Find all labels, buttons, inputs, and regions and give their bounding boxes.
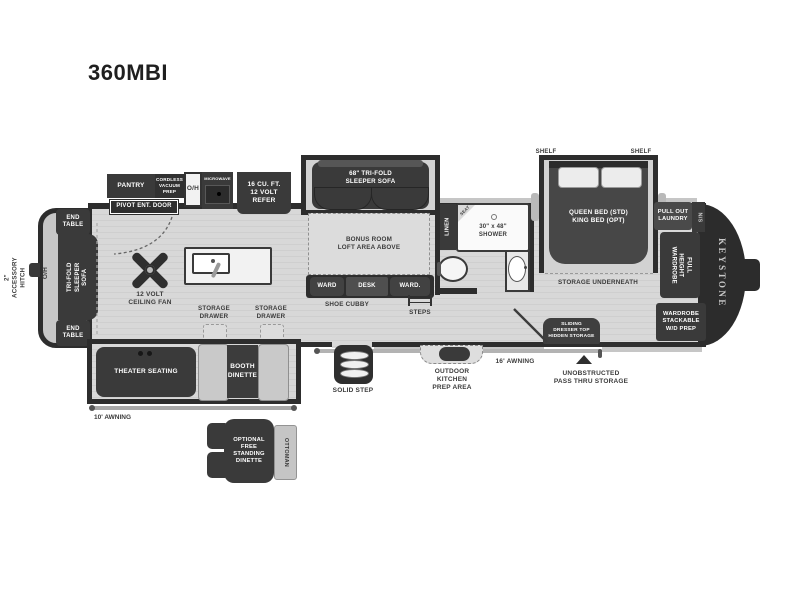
bath-wall-bottom [435,288,477,294]
step-tread [340,351,369,360]
awning-end-cap [291,405,297,411]
shelf-left-label: SHELF [528,148,564,158]
wardrobe-left: WARD [310,277,344,296]
step-tread [340,360,369,369]
sofa-cushion [314,187,372,210]
booth-bench-left [198,344,229,401]
full-height-wardrobe: FULL HEIGHT WARDROBE [660,232,700,298]
shower-label: 30" x 48" SHOWER [479,224,507,239]
toilet [438,256,468,282]
page-title: 360MBI [88,60,168,86]
kitchen-sink [192,253,230,274]
cordless-vacuum-prep: CORDLESS VACUUM PREP [155,174,184,198]
desk: DESK [346,277,388,296]
pillow [601,167,642,188]
shoe-cubby-label: SHOE CUBBY [315,300,379,310]
accessory-hitch-label: 2" ACCESSORY HITCH [0,230,30,326]
ottoman: OTTOMAN [274,425,297,480]
bed-label: QUEEN BED (STD) KING BED (OPT) [549,205,648,229]
sliding-dresser: SLIDING DRESSER TOP HIDDEN STORAGE [543,318,600,344]
steps-icon [408,295,432,306]
bath-sink [508,256,526,282]
booth-dinette-table: BOOTH DINETTE [227,345,258,398]
optional-dinette-table: OPTIONAL FREE STANDING DINETTE [224,419,274,483]
kitchen-overhead-cabinet: O/H [184,172,202,207]
ceiling-fan-hub [145,265,155,275]
booth-bench-right [258,344,289,401]
microwave: MICROWAVE [202,172,233,209]
rear-tri-fold-sofa: TRI-FOLD SLEEPER SOFA [58,234,98,320]
pantry: PANTRY [107,174,155,198]
shower-head-icon [491,214,497,220]
awning-end-cap [314,348,320,354]
brand-label: KEYSTONE [700,232,744,314]
sofa-armrest [318,160,423,167]
wardrobe-right: WARD. [390,277,430,296]
wardrobe-wd-prep: WARDROBE STACKABLE W/D PREP [656,303,706,341]
toilet-tank [437,262,441,276]
rear-overhead-cabinet-label: O/H [38,240,54,306]
pillow [558,167,599,188]
shelf-right-label: SHELF [623,148,659,158]
storage-underneath-label: STORAGE UNDERNEATH [548,277,648,289]
bonus-room-loft: BONUS ROOM LOFT AREA ABOVE [308,213,430,275]
end-table-top: END TABLE [56,209,90,235]
faucet-icon [211,259,215,263]
refrigerator: 16 CU. FT. 12 VOLT REFER [237,172,291,214]
solid-step-label: SOLID STEP [322,386,384,396]
bed-slide-travel-line [545,273,653,274]
main-awning-label: 16' AWNING [480,357,550,367]
step-tread [340,369,369,378]
night-stand: N/S [692,202,705,232]
pull-out-laundry: PULL OUT LAUNDRY [654,202,692,230]
pivot-entry-door: PIVOT ENT. DOOR [110,200,178,214]
shower: SEAT 30" x 48" SHOWER [456,203,530,252]
pass-thru-arrow-icon [576,355,592,364]
rear-awning-rail [92,406,294,410]
outdoor-kitchen-label: OUTDOOR KITCHEN PREP AREA [420,367,484,393]
awning-end-cap [89,405,95,411]
bath-faucet-icon [524,266,527,269]
rear-awning-label: 10' AWNING [94,414,131,421]
steps-label: STEPS [404,308,436,318]
floorplan-page: 360MBI 2" ACCESSORY HITCH O/H END TABLE … [0,0,800,600]
king-pin [742,259,760,291]
linen-cabinet: LINEN [440,204,456,250]
cupholder-icon [147,351,152,356]
theater-seating: THEATER SEATING [96,347,196,397]
cupholder-icon [138,351,143,356]
storage-drawer-left-label: STORAGE DRAWER [196,305,232,321]
ceiling-fan-label: 12 VOLT CEILING FAN [113,290,187,308]
awning-end-cap [598,349,602,358]
storage-drawer-right-label: STORAGE DRAWER [253,305,289,321]
bottom-trim-front [602,347,702,352]
microwave-knob-icon [217,192,221,196]
outdoor-kitchen-grill-icon [439,347,470,361]
pass-thru-label: UNOBSTRUCTED PASS THRU STORAGE [545,369,637,387]
sofa-cushion [371,187,429,210]
slide-stop [531,193,539,221]
end-table-bottom: END TABLE [56,320,90,346]
sofa-68-label: 68" TRI-FOLD SLEEPER SOFA [312,167,429,189]
